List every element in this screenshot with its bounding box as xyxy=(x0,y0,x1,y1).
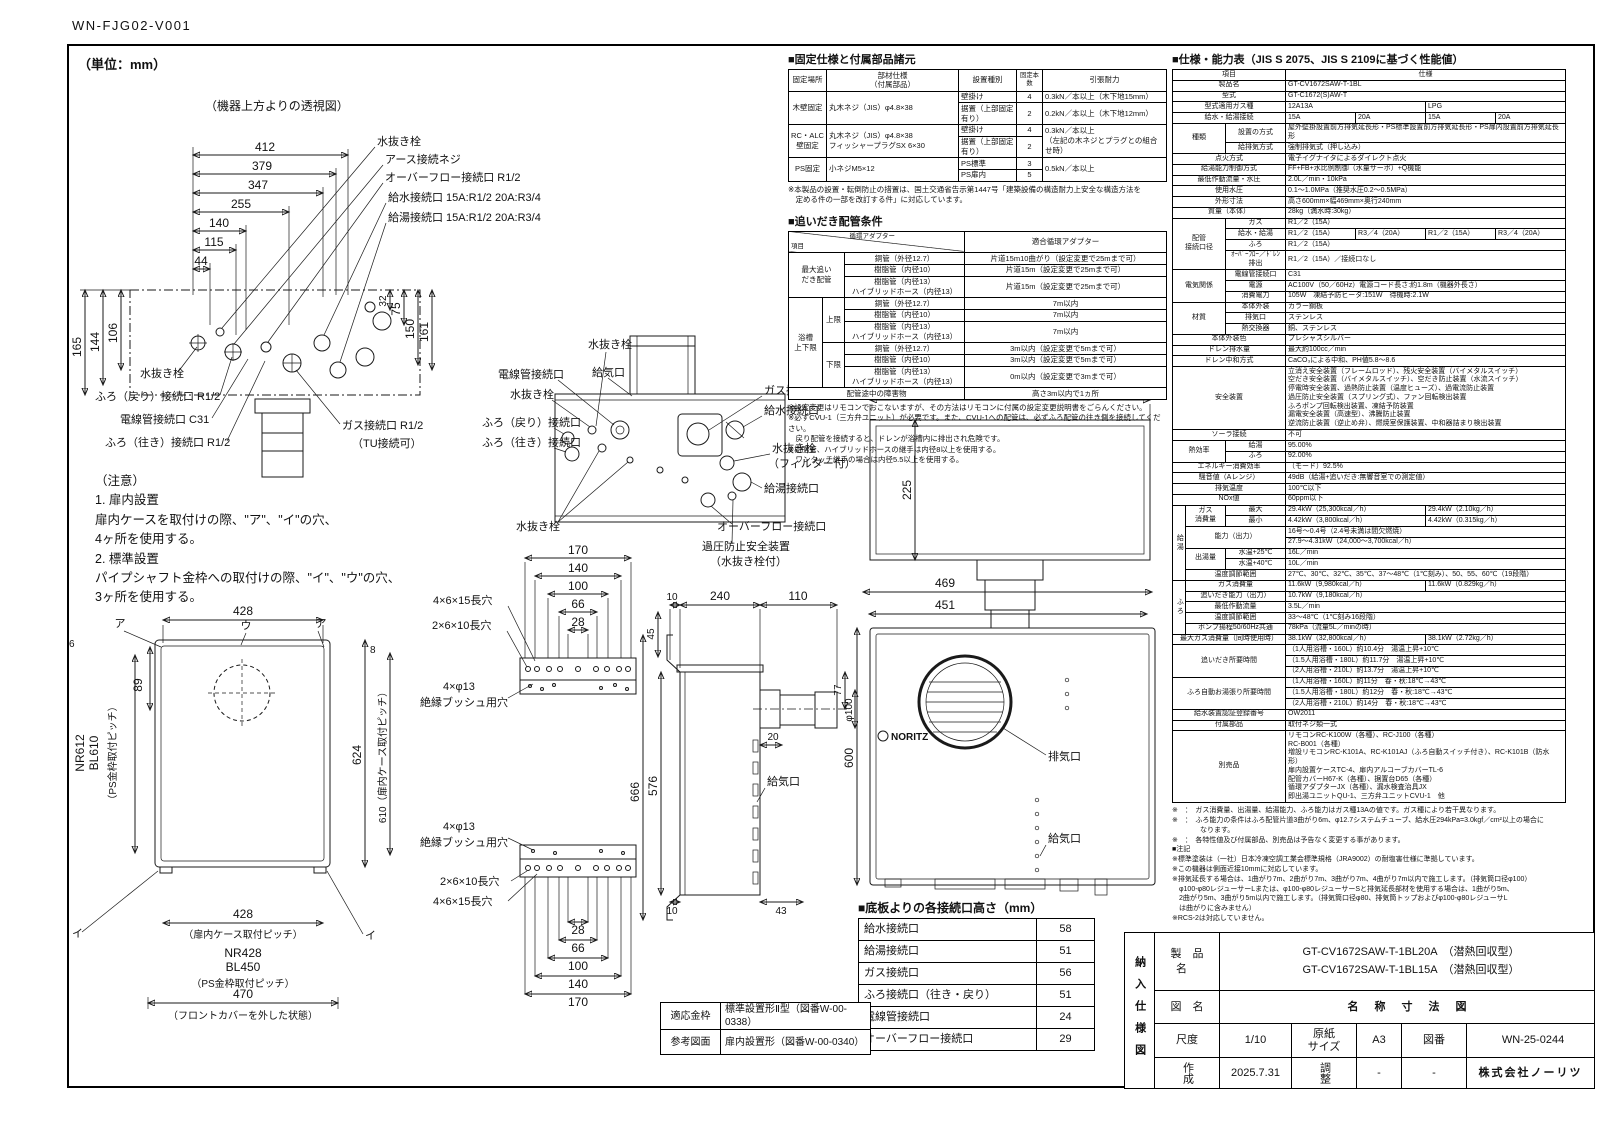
cell: 設置種別 xyxy=(959,70,1017,92)
fixing-table-title: ■固定仕様と付属部品諸元 xyxy=(788,51,1168,67)
cell: 適応金枠 xyxy=(661,1003,721,1030)
cell: 4 xyxy=(1017,124,1043,136)
cell: 給水・給湯接続 xyxy=(1173,113,1286,124)
cell: 電気関係 xyxy=(1173,270,1226,302)
reheat-table-note: ※設定変更はリモコンでおこないますが、その方法はリモコンに付属の設定変更説明書を… xyxy=(788,403,1168,466)
label-water-inlet: 給水接続口 15A:R1/2 20A:R3/4 xyxy=(388,190,541,204)
frame-ref-section: 適応金枠標準設置形Ⅱ型（図番W-00-0338）参考図面扉内設置形（図番W-00… xyxy=(660,1002,871,1055)
hole-label-i1: イ xyxy=(72,928,83,940)
cell: 銅、ステンレス xyxy=(1286,324,1566,335)
spec-table: 項目仕様製品名GT-CV1672SAW-T-1BL型式GT-C1672(S)AW… xyxy=(1172,69,1596,803)
dim-28b: 28 xyxy=(571,923,585,937)
label-earth-screw: アース接続ネジ xyxy=(385,152,461,166)
cell: 給排気方式 xyxy=(1226,143,1286,154)
cell: 作成 xyxy=(1155,1058,1220,1089)
cell: 11.6kW（0.829kg／h） xyxy=(1426,580,1566,591)
cell: R1／2（15A）／接続口なし xyxy=(1286,250,1566,270)
cell: 38.1kW（2.72kg／h） xyxy=(1426,634,1566,645)
cell: 使用水圧 xyxy=(1173,186,1286,197)
cell: 点火方式 xyxy=(1173,154,1286,165)
cell: PS扉内 xyxy=(959,169,1017,181)
dim-nr428: NR428 xyxy=(224,946,262,960)
hole-label-a1: ア xyxy=(115,618,126,630)
dim-89: 89 xyxy=(131,678,145,692)
label-drain-bottom: 水抜き栓 xyxy=(516,519,560,533)
dim-144: 144 xyxy=(88,332,102,352)
dim-77: 77 xyxy=(833,684,844,696)
cell: 15A xyxy=(1286,113,1356,124)
label-hot-water-outlet: 給湯接続口 15A:R1/2 20A:R3/4 xyxy=(388,210,541,224)
cell: ふろ xyxy=(1226,240,1286,251)
label-drain-plug: 水抜き栓 xyxy=(377,134,421,148)
cell: 樹脂管（内径10） xyxy=(845,309,965,321)
cell: 92.00% xyxy=(1286,451,1566,462)
cell: ドレン排水量 xyxy=(1173,345,1286,356)
dim-66b: 66 xyxy=(571,941,585,955)
cell: リモコンRC-K100W（各種）、RC-J100（各種） RC-B001（各種）… xyxy=(1286,731,1566,803)
dim-576: 576 xyxy=(646,776,660,796)
dim-379: 379 xyxy=(252,159,272,173)
cell: 図名 xyxy=(1155,991,1220,1024)
cell: R1／2（15A） xyxy=(1286,240,1566,251)
cell: 温度調節範囲 xyxy=(1186,570,1286,581)
bracket-bottom xyxy=(520,845,636,877)
cell: 20A xyxy=(1356,113,1426,124)
cell: 循環アダプター 項目 xyxy=(789,231,965,253)
cell: 0m以内（設定変更で3mまで可） xyxy=(965,366,1167,388)
cell: 38.1kW（32,800kcal／h） xyxy=(1286,634,1426,645)
cell: 樹脂管（内径10） xyxy=(845,264,965,276)
label-slot-6x10-b: 2×6×10長穴 xyxy=(440,874,499,888)
label-insulation-bush: 絶縁ブッシュ用穴 xyxy=(420,695,508,709)
cell: 樹脂管（内径10） xyxy=(845,354,965,366)
title-block: 納入仕様図製品名GT-CV1672SAW-T-1BL20A （潜熱回収型） GT… xyxy=(1124,932,1595,1089)
label-slot-6x10: 2×6×10長穴 xyxy=(432,618,491,632)
label-air-inlet: 給気口 xyxy=(592,365,625,379)
cell: 据置（上部固定有り） xyxy=(959,136,1017,158)
cell: 2.0L／min・10kPa xyxy=(1286,175,1566,186)
dimension-lines-top: 412 379 347 255 140 115 44 xyxy=(193,140,348,335)
cell: 給湯 xyxy=(1173,505,1186,580)
cell: 水温+40℃ xyxy=(1226,559,1286,570)
cell: 取付ネジ類一式 xyxy=(1286,720,1566,731)
label-slot-6x15: 4×6×15長穴 xyxy=(433,593,492,607)
label-hot-out: 給湯接続口 xyxy=(764,481,819,495)
connection-holes xyxy=(189,302,391,378)
cell: 60ppm以下 xyxy=(1286,494,1566,505)
cell: 最大約100cc／min xyxy=(1286,345,1566,356)
cell: 銅管（外径12.7） xyxy=(845,253,965,265)
cell: - xyxy=(1357,1058,1402,1089)
cell: ポンプ揚程50/60Hz共通 xyxy=(1186,623,1286,634)
cell: R3／4（20A） xyxy=(1356,229,1426,240)
bracket-bottom-dims: 28 66 100 140 170 xyxy=(525,877,631,1009)
cell: 型式 xyxy=(1173,91,1286,102)
cell: 78kPa（流量5L／minの時） xyxy=(1286,623,1566,634)
cell: 原紙 サイズ xyxy=(1292,1024,1357,1058)
label-4xphi13: 4×φ13 xyxy=(443,681,475,693)
cell: （1.5人用浴槽・180L）約11.7分 湯温上昇+10℃ xyxy=(1286,656,1566,667)
cell: 固定場所 xyxy=(789,70,827,92)
cell: 外形寸法 xyxy=(1173,197,1286,208)
cell: PS標準 xyxy=(959,158,1017,170)
dim-624: 624 xyxy=(350,745,364,765)
reheat_table: 循環アダプター 項目適合循環アダプター最大追い だき配管銅管（外径12.7）片道… xyxy=(788,231,1167,400)
mid-tables: ■固定仕様と付属部品諸元 固定場所部材仕様 （付属部品）設置種別固定本数引張耐力… xyxy=(788,50,1168,473)
cell: 据置（上部固定有り） xyxy=(959,103,1017,125)
label-conduit-port: 電線管接続口 C31 xyxy=(120,412,209,426)
cell: 項目 xyxy=(1173,70,1286,81)
cell: 5 xyxy=(1017,169,1043,181)
cell: 固定本数 xyxy=(1017,70,1043,92)
label-drain-top: 水抜き栓 xyxy=(588,337,632,351)
cell: ふろ xyxy=(1226,451,1286,462)
dim-32: 32 xyxy=(378,295,389,307)
cell: 電源 xyxy=(1226,281,1286,292)
cell: 丸木ネジ（JIS）φ4.8×38 xyxy=(827,91,959,124)
dim-nr612: NR612 xyxy=(73,734,87,772)
spec-notes: ※ ： ガス消費量、出湯量、給湯能力、ふろ能力はガス種13Aの値です。ガス種によ… xyxy=(1172,806,1596,924)
pitch-labels-left: NR612 BL610 （PS金枠取付ピッチ） xyxy=(73,655,135,853)
cell: （モード）92.5% xyxy=(1286,462,1566,473)
cell: 高さ600mm×幅469mm×奥行240mm xyxy=(1286,197,1566,208)
label-overflow-port: オーバーフロー接続口 R1/2 xyxy=(385,170,521,184)
cell: 追いだき所要時間 xyxy=(1173,645,1286,677)
cell: 10.7kW（9,180kcal／h） xyxy=(1286,591,1566,602)
cell: （2人用浴槽・210L）約14分 春・秋:18℃→43℃ xyxy=(1286,699,1566,710)
cell: カラー鋼板 xyxy=(1286,302,1566,313)
cell: 29.4kW（25,300kcal／h） xyxy=(1286,505,1426,516)
cell: 製品名 xyxy=(1155,933,1220,991)
cell: 立消え安全装置（フレームロッド）、残火安全装置（バイメタルスイッチ） 空だき安全… xyxy=(1286,367,1566,430)
cell: 4 xyxy=(1017,91,1043,103)
cell: 図番 xyxy=(1402,1024,1467,1058)
label-bath-return-port: ふろ（戻り）接続口 R1/2 xyxy=(95,389,220,403)
cell: 熱効率 xyxy=(1173,441,1226,463)
cell: R3／4（20A） xyxy=(1496,229,1566,240)
label-bath-supply: ふろ（往き）接続口 xyxy=(482,435,581,449)
cell: AC100V（50／60Hz）電源コード長さ:約1.8m（機器外長さ） xyxy=(1286,281,1566,292)
cell: 騒音値（Aレンジ） xyxy=(1173,473,1286,484)
cell: 給湯接続口 xyxy=(859,941,1037,963)
dim-43: 43 xyxy=(775,906,787,917)
cell: 電子イグナイタによるダイレクト点火 xyxy=(1286,154,1566,165)
cell: 7m以内 xyxy=(965,309,1167,321)
cell: 浴槽 上下限 xyxy=(789,298,823,388)
title_block: 納入仕様図製品名GT-CV1672SAW-T-1BL20A （潜熱回収型） GT… xyxy=(1124,932,1595,1089)
dim-75: 75 xyxy=(389,302,403,316)
cell: 納入仕様図 xyxy=(1125,933,1155,1089)
label-bath-return: ふろ（戻り）接続口 xyxy=(482,415,581,429)
dims-right: 624 610（扉内ケース取付ピッチ） xyxy=(350,640,390,867)
cell: 給水・給湯 xyxy=(1226,229,1286,240)
cell: 熱交換器 xyxy=(1226,324,1286,335)
frame_table: 適応金枠標準設置形Ⅱ型（図番W-00-0338）参考図面扉内設置形（図番W-00… xyxy=(660,1002,871,1055)
dim-140: 140 xyxy=(209,216,229,230)
cell: 95.00% xyxy=(1286,441,1566,452)
cell: GT-C1672(S)AW-T xyxy=(1286,91,1566,102)
title-block-table: 納入仕様図製品名GT-CV1672SAW-T-1BL20A （潜熱回収型） GT… xyxy=(1124,932,1595,1089)
cell: 3m以内（設定変更で5mまで可） xyxy=(965,354,1167,366)
front-view-body: NORITZ xyxy=(870,628,1155,895)
cell: OW2011 xyxy=(1286,709,1566,720)
dim-bl450: BL450 xyxy=(226,960,261,974)
cell: 樹脂管（内径13） ハイブリッドホース（内径13） xyxy=(845,366,965,388)
cell: C31 xyxy=(1286,270,1566,281)
cell: GT-CV1672SAW-T-1BL xyxy=(1286,80,1566,91)
cell: 名称寸法図 xyxy=(1220,991,1595,1024)
cell: 3 xyxy=(1017,158,1043,170)
dimension-lines-right: 32 75 150 161 xyxy=(378,290,432,370)
dim-347: 347 xyxy=(248,178,268,192)
cell: エネルギー消費効率 xyxy=(1173,462,1286,473)
cell: WN-25-0244 xyxy=(1467,1024,1595,1058)
cell: 7m以内 xyxy=(965,321,1167,343)
cell: 105W 凍結予防ヒータ:151W 待機時:2.1W xyxy=(1286,291,1566,302)
cell: 温度調節範囲 xyxy=(1186,613,1286,624)
dim-110: 110 xyxy=(788,589,807,603)
dim-6: 6 xyxy=(69,639,75,650)
label-drain-left: 水抜き栓 xyxy=(510,387,554,401)
cell: 扉内設置形（図番W-00-0340） xyxy=(721,1030,871,1055)
dims-bottom: イ イ 428 （扉内ケース取付ピッチ） NR428 BL450 （PS金枠取付… xyxy=(72,871,376,1022)
dim-255: 255 xyxy=(231,197,251,211)
cell: 片道15m（設定変更で25mまで可） xyxy=(965,264,1167,276)
cell: 強制排気式（押し込み） xyxy=(1286,143,1566,154)
bracket-and-side-view: 170 140 100 66 28 4×6×15長穴 2×6×10長穴 4×φ1… xyxy=(415,540,865,1008)
cell: 高さ3m以内で1ヵ所 xyxy=(965,388,1167,400)
cell: NOx値 xyxy=(1173,494,1286,505)
dim-428-top: 428 xyxy=(233,604,253,618)
side-view-dims: 10 240 110 45 77 φ100 20 給気口 576 666 10 … xyxy=(628,589,855,920)
cell: 51 xyxy=(1037,941,1095,963)
cell: ソーラ接続 xyxy=(1173,430,1286,441)
dim-28t: 28 xyxy=(571,615,585,629)
cell: 16号～0.4号（2.4号未満は間欠燃焼） xyxy=(1286,527,1566,538)
dim-610-pitch: 610（扉内ケース取付ピッチ） xyxy=(376,687,389,823)
dim-451: 451 xyxy=(935,598,955,612)
cell: 不可 xyxy=(1286,430,1566,441)
cell: 10L／min xyxy=(1286,559,1566,570)
cell: 49dB（給湯+追いだき:無響音室での測定値） xyxy=(1286,473,1566,484)
cell: 最低作動流量・水圧 xyxy=(1173,175,1286,186)
cell: 20A xyxy=(1496,113,1566,124)
label-slot-6x15-b: 4×6×15長穴 xyxy=(433,894,492,908)
cell: 電線管接続口 xyxy=(859,1007,1037,1029)
connection-heights-table: 給水接続口58給湯接続口51ガス接続口56ふろ接続口（往き・戻り）51電線管接続… xyxy=(858,918,1098,1051)
cell: 最小 xyxy=(1226,516,1286,527)
dim-20: 20 xyxy=(767,732,779,743)
cell: 11.6kW（9,980kcal／h） xyxy=(1286,580,1426,591)
dim-100t: 100 xyxy=(568,579,588,593)
dim-bl610: BL610 xyxy=(87,735,101,770)
dim-140t: 140 xyxy=(568,561,588,575)
cell: LPG xyxy=(1426,102,1566,113)
cell: 0.1～1.0MPa（推奨水圧0.2～0.5MPa） xyxy=(1286,186,1566,197)
dim-165: 165 xyxy=(70,337,84,357)
cell: 質量（本体） xyxy=(1173,207,1286,218)
cell: 100℃以下 xyxy=(1286,484,1566,495)
hole-label-a2: ア xyxy=(316,618,327,630)
cell: 0.5kN／本以上 xyxy=(1043,158,1167,182)
cell: 排気口 xyxy=(1226,313,1286,324)
cell: 15A xyxy=(1426,113,1496,124)
device-outline-front xyxy=(155,640,330,873)
cell: 銅管（外径12.7） xyxy=(845,343,965,355)
label-tu-connectable: （TU接続可） xyxy=(352,436,422,450)
spec-section: ■仕様・能力表（JIS S 2075、JIS S 2109に基づく性能値） 項目… xyxy=(1172,50,1596,931)
dim-170b: 170 xyxy=(568,995,588,1009)
cell: 0.3kN／本以上（木下地15mm） xyxy=(1043,91,1167,103)
cell: オーバーフロー接続口 xyxy=(859,1029,1037,1051)
dim-10: 10 xyxy=(666,592,678,603)
cell: 給湯 xyxy=(1226,441,1286,452)
bracket-top-dims: 170 140 100 66 28 xyxy=(525,543,631,658)
cell: 56 xyxy=(1037,963,1095,985)
cell: 58 xyxy=(1037,919,1095,941)
cell: 片道15m（設定変更で25mまで可） xyxy=(965,276,1167,298)
cell: RC・ALC 壁固定 xyxy=(789,124,827,157)
cell: 最大追い だき配管 xyxy=(789,253,845,298)
label-insulation-bush-b: 絶縁ブッシュ用穴 xyxy=(420,835,508,849)
dim-161: 161 xyxy=(417,322,431,342)
label-ps-pitch-left: （PS金枠取付ピッチ） xyxy=(106,701,119,804)
cell: プレシャスシルバー xyxy=(1286,334,1566,345)
dim-469: 469 xyxy=(935,576,955,590)
dim-240: 240 xyxy=(710,589,730,603)
bracket-top-labels: 4×6×15長穴 2×6×10長穴 4×φ13 絶縁ブッシュ用穴 xyxy=(420,593,535,709)
cell: （1人用浴槽・160L）約11分 春・秋:18℃→43℃ xyxy=(1286,677,1566,688)
cell: 調整 xyxy=(1292,1058,1357,1089)
cell: 33～48℃（1℃刻み16段階） xyxy=(1286,613,1566,624)
bracket-bottom-labels: 4×φ13 絶縁ブッシュ用穴 2×6×10長穴 4×6×15長穴 xyxy=(420,821,537,908)
cell: 尺度 xyxy=(1155,1024,1220,1058)
perspective-title: （機器上方よりの透視図） xyxy=(205,98,349,113)
cell: 付属部品 xyxy=(1173,720,1286,731)
cell: R1／2（15A） xyxy=(1286,218,1566,229)
cell: ｵｰﾊﾞｰﾌﾛｰ／ﾄﾞﾚﾝ排出 xyxy=(1226,250,1286,270)
cell: 2 xyxy=(1017,136,1043,158)
cell: 0.2kN／本以上（木下地12mm） xyxy=(1043,103,1167,125)
cell: 樹脂管（内径13） ハイブリッドホース（内径13） xyxy=(845,321,965,343)
cell: 27.9～4.31kW（24,000～3,700kcal／h） xyxy=(1286,537,1566,548)
cell: 27℃、30℃、32℃、35℃、37～48℃（1℃刻み）、50、55、60℃（1… xyxy=(1286,570,1566,581)
label-gas-port: ガス接続口 R1/2 xyxy=(342,418,423,432)
dim-225: 225 xyxy=(900,480,914,500)
cell: 29 xyxy=(1037,1029,1095,1051)
dim-428-bottom: 428 xyxy=(233,907,253,921)
bracket-top xyxy=(520,658,636,694)
dim-412: 412 xyxy=(255,140,275,154)
cell: 3.5L／min xyxy=(1286,602,1566,613)
dim-170t: 170 xyxy=(568,543,588,557)
cell: 最大 xyxy=(1226,505,1286,516)
heights-section: ■底板よりの各接続口高さ（mm） 給水接続口58給湯接続口51ガス接続口56ふろ… xyxy=(858,898,1098,1051)
dim-470: 470 xyxy=(233,987,253,1001)
cell: 屋外壁掛設置前方排気延長形・PS標準設置前方排気延長形・PS扉内設置前方排気延長… xyxy=(1286,123,1566,143)
cell: R1／2（15A） xyxy=(1426,229,1496,240)
cell: 小ネジM5×12 xyxy=(827,158,959,182)
caption-front-cover-removed: （フロントカバーを外した状態） xyxy=(168,1009,318,1022)
label-conduit: 電線管接続口 xyxy=(498,367,564,381)
cell: 4.42kW（0.315kg／h） xyxy=(1426,516,1566,527)
cell: 3m以内（設定変更で5mまで可） xyxy=(965,343,1167,355)
cell: 12A13A xyxy=(1286,102,1426,113)
cell: （2人用浴槽・210L）約13.7分 湯温上昇+10℃ xyxy=(1286,666,1566,677)
cell: （1.5人用浴槽・180L）約12分 春・秋:18℃→43℃ xyxy=(1286,688,1566,699)
cell: 参考図面 xyxy=(661,1030,721,1055)
cell: 1/10 xyxy=(1220,1024,1292,1058)
label-drain-plug-2: 水抜き栓 xyxy=(140,366,184,380)
cell: 本体外装色 xyxy=(1173,334,1286,345)
cell: 2 xyxy=(1017,103,1043,125)
cell: ガス消費量 xyxy=(1186,580,1286,591)
spec_table: 項目仕様製品名GT-CV1672SAW-T-1BL型式GT-C1672(S)AW… xyxy=(1172,69,1566,803)
dim-10b: 10 xyxy=(666,906,678,917)
cell: 水温+25℃ xyxy=(1226,548,1286,559)
cell: 引張耐力 xyxy=(1043,70,1167,92)
tu-drain-stub xyxy=(255,399,310,477)
cell: 51 xyxy=(1037,985,1095,1007)
dim-115: 115 xyxy=(204,235,223,249)
dim-66t: 66 xyxy=(571,597,585,611)
heights-table-title: ■底板よりの各接続口高さ（mm） xyxy=(858,899,1098,916)
spec-table-title: ■仕様・能力表（JIS S 2075、JIS S 2109に基づく性能値） xyxy=(1172,51,1596,67)
front-view-labels: 排気口 給気口 xyxy=(1003,728,1081,856)
dim-8: 8 xyxy=(370,645,376,656)
cell: 上限 xyxy=(823,298,845,343)
hole-label-u: ウ xyxy=(241,619,252,632)
cell: 株式会社ノーリツ xyxy=(1467,1058,1595,1089)
dim-45: 45 xyxy=(646,628,657,640)
cell: 樹脂管（内径13） ハイブリッドホース（内径13） xyxy=(845,276,965,298)
cell: 銅管（外径12.7） xyxy=(845,298,965,310)
cell: 出湯量 xyxy=(1186,548,1226,570)
cell: 別売品 xyxy=(1173,731,1286,803)
cell: 木壁固定 xyxy=(789,91,827,124)
cell: GT-CV1672SAW-T-1BL20A （潜熱回収型） GT-CV1672S… xyxy=(1220,933,1595,991)
cell: ガス接続口 xyxy=(859,963,1037,985)
cell: R1／2（15A） xyxy=(1286,229,1356,240)
dim-150: 150 xyxy=(403,319,417,339)
heights_table: 給水接続口58給湯接続口51ガス接続口56ふろ接続口（往き・戻り）51電線管接続… xyxy=(858,918,1095,1051)
cell: 壁掛け xyxy=(959,91,1017,103)
cell: 標準設置形Ⅱ型（図番W-00-0338） xyxy=(721,1003,871,1030)
hole-label-i2: イ xyxy=(365,930,376,942)
document-code: WN-FJG02-V001 xyxy=(72,18,191,33)
dim-140b: 140 xyxy=(568,977,588,991)
cell: 最低作動流量 xyxy=(1186,602,1286,613)
cell: 最大ガス消費量（同時使用時） xyxy=(1173,634,1286,645)
cell: 製品名 xyxy=(1173,80,1286,91)
cell: 部材仕様 （付属部品） xyxy=(827,70,959,92)
cell: A3 xyxy=(1357,1024,1402,1058)
cell: PS固定 xyxy=(789,158,827,182)
noritz-logo-text: NORITZ xyxy=(891,732,928,743)
cell: CaCO₃による中和、PH値5.8～8.6 xyxy=(1286,356,1566,367)
fix_table: 固定場所部材仕様 （付属部品）設置種別固定本数引張耐力木壁固定丸木ネジ（JIS）… xyxy=(788,69,1167,182)
dim-666: 666 xyxy=(628,782,642,802)
front-view-dims: 469 451 600 xyxy=(842,576,1152,885)
cell: 給水装置認証登録番号 xyxy=(1173,709,1286,720)
reheat-table-title: ■追いだき配管条件 xyxy=(788,213,1168,229)
cell: 排気温度 xyxy=(1173,484,1286,495)
cell: 給湯能力制御方式 xyxy=(1173,164,1286,175)
cell: ふろ xyxy=(1173,580,1186,634)
cell: 給水接続口 xyxy=(859,919,1037,941)
label-exhaust-port: 排気口 xyxy=(1048,749,1081,763)
cell: 壁掛け xyxy=(959,124,1017,136)
